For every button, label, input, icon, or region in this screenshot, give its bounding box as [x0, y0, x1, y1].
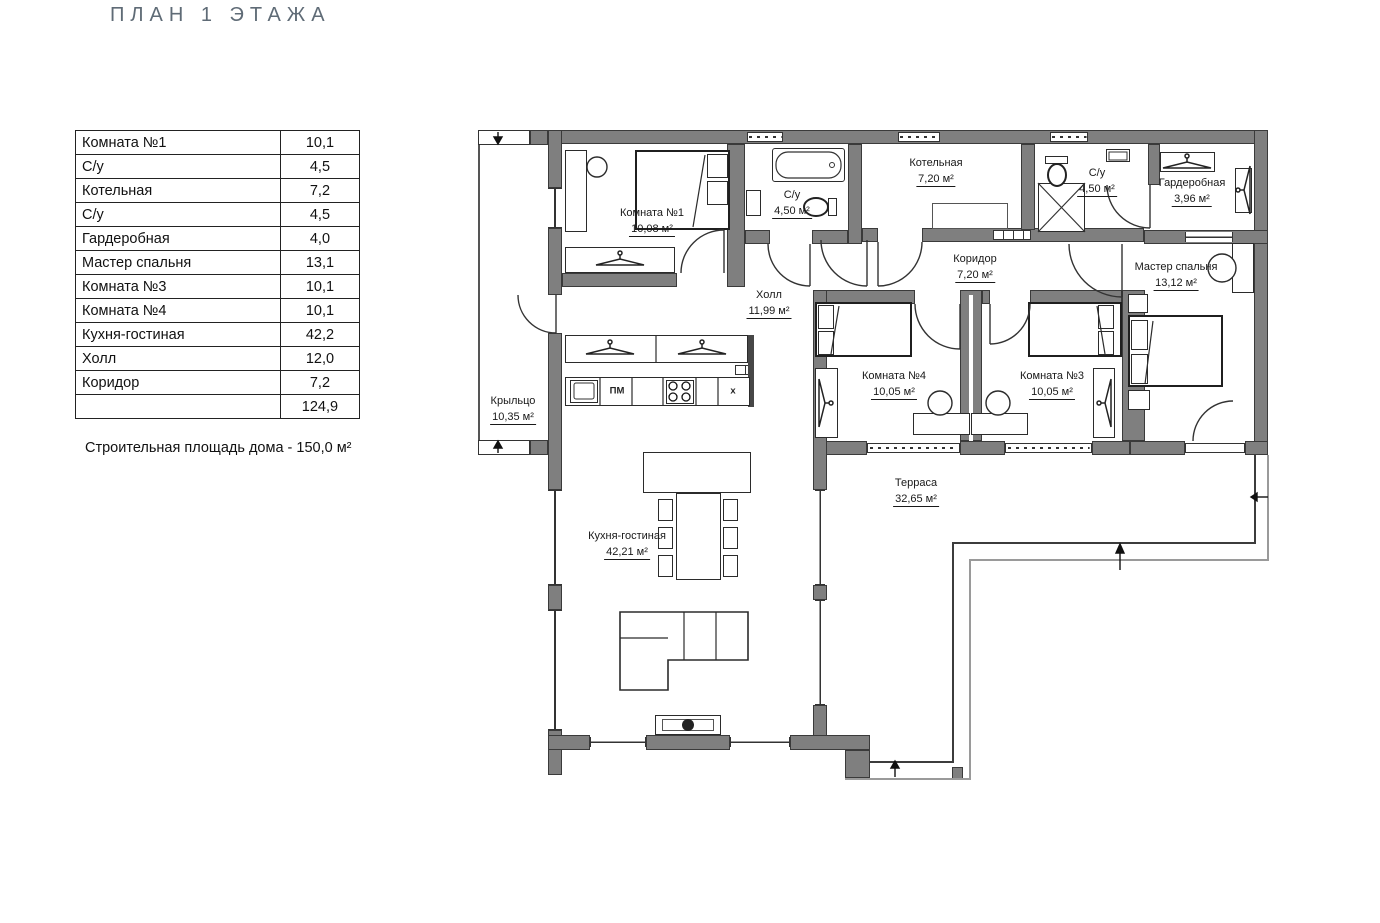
- wardrobe: [815, 368, 838, 438]
- floor-plan-drawing: ПМ х: [470, 125, 1270, 790]
- total-value: 124,9: [280, 395, 359, 419]
- wall: [1245, 441, 1268, 455]
- room-label-bedroom1: Комната №1 10,08 м²: [620, 207, 684, 237]
- window-icon: [898, 132, 940, 142]
- wall: [1130, 441, 1185, 455]
- window-icon: [1185, 232, 1233, 242]
- room-name-cell: Мастер спальня: [76, 251, 281, 275]
- room-label-room4: Комната №4 10,05 м²: [862, 370, 926, 400]
- pillow: [818, 305, 834, 329]
- wall: [562, 273, 677, 287]
- table-row: Мастер спальня13,1: [76, 251, 360, 275]
- room-area-cell: 42,2: [280, 323, 359, 347]
- room-name-cell: Холл: [76, 347, 281, 371]
- desk: [565, 150, 587, 232]
- total-label-cell: [76, 395, 281, 419]
- sink: [1106, 149, 1130, 162]
- table-row: Холл12,0: [76, 347, 360, 371]
- toilet-tank: [1045, 156, 1068, 164]
- room-label-wardrobe-room: Гардеробная 3,96 м²: [1159, 177, 1226, 207]
- window-icon: [548, 610, 562, 730]
- window-icon: [815, 600, 825, 705]
- room-area-cell: 10,1: [280, 299, 359, 323]
- wall: [1092, 441, 1130, 455]
- page-title: ПЛАН 1 ЭТАЖА: [110, 4, 331, 27]
- porch-wall: [478, 130, 480, 455]
- wall: [530, 130, 548, 145]
- wall: [1254, 130, 1268, 455]
- pillow: [1131, 320, 1148, 350]
- window-icon: [747, 132, 783, 142]
- stove: [666, 380, 694, 404]
- window-icon: [548, 188, 562, 228]
- chair: [723, 499, 738, 521]
- pillow: [707, 181, 728, 205]
- fridge-label: х: [730, 386, 735, 397]
- wall: [548, 333, 562, 490]
- table-row: Комната №410,1: [76, 299, 360, 323]
- room-label-room3: Комната №3 10,05 м²: [1020, 370, 1084, 400]
- wardrobe-shelf: [1160, 152, 1215, 172]
- wardrobe: [1093, 368, 1115, 438]
- room-name-cell: Комната №1: [76, 131, 281, 155]
- wall: [548, 228, 562, 295]
- plan-linework: [470, 125, 1270, 790]
- room-area-cell: 4,5: [280, 155, 359, 179]
- room-name-cell: Гардеробная: [76, 227, 281, 251]
- wall: [646, 735, 730, 750]
- kitchen-island: [643, 452, 751, 493]
- room-name-cell: Кухня-гостиная: [76, 323, 281, 347]
- entrance-door-opening: [548, 295, 562, 333]
- table-row: Коридор7,2: [76, 371, 360, 395]
- room-label-boiler: Котельная 7,20 м²: [909, 157, 962, 187]
- room-label-bathroom1: С/у 4,50 м²: [772, 189, 812, 219]
- room-name-cell: Комната №3: [76, 275, 281, 299]
- bathtub: [772, 148, 845, 182]
- window-icon: [730, 737, 790, 747]
- room-area-cell: 7,2: [280, 371, 359, 395]
- chair: [723, 527, 738, 549]
- room-area-cell: 4,5: [280, 203, 359, 227]
- wall: [790, 735, 870, 750]
- room-label-master-bedroom: Мастер спальня 13,12 м²: [1135, 261, 1218, 291]
- build-area-note: Строительная площадь дома - 150,0 м²: [85, 440, 352, 456]
- porch-step: [478, 440, 530, 455]
- area-table-body: Комната №110,1С/у4,5Котельная7,2С/у4,5Га…: [76, 131, 360, 395]
- room-label-terrace: Терраса 32,65 м²: [893, 477, 939, 507]
- wall: [848, 144, 862, 244]
- window-icon: [867, 443, 960, 453]
- table-row-total: 124,9: [76, 395, 360, 419]
- table-row: Котельная7,2: [76, 179, 360, 203]
- kitchen-sink: [570, 380, 598, 403]
- tv: [662, 719, 714, 731]
- room-name-cell: Коридор: [76, 371, 281, 395]
- wall: [982, 290, 990, 304]
- table-row: Комната №110,1: [76, 131, 360, 155]
- table-row: Кухня-гостиная42,2: [76, 323, 360, 347]
- room-label-bathroom2: С/у 4,50 м²: [1077, 167, 1117, 197]
- wardrobe-shelf: [1235, 168, 1252, 213]
- sink: [746, 190, 761, 216]
- hall-wardrobe: [565, 335, 748, 363]
- area-table: Комната №110,1С/у4,5Котельная7,2С/у4,5Га…: [75, 130, 360, 419]
- window-icon: [815, 490, 825, 585]
- wall: [548, 735, 590, 750]
- table-row: С/у4,5: [76, 203, 360, 227]
- table-row: Комната №310,1: [76, 275, 360, 299]
- wall: [745, 230, 770, 244]
- wall: [812, 230, 848, 244]
- window-icon: [590, 737, 646, 747]
- chair: [723, 555, 738, 577]
- room-label-hall: Холл 11,99 м²: [747, 289, 792, 319]
- room-label-corridor: Коридор 7,20 м²: [953, 253, 996, 283]
- wall: [1021, 144, 1035, 230]
- terrace-column: [952, 767, 963, 779]
- pillow: [818, 331, 834, 355]
- room-area-cell: 12,0: [280, 347, 359, 371]
- wall: [960, 441, 1005, 455]
- table-row: Гардеробная4,0: [76, 227, 360, 251]
- floor-plan-page: ПЛАН 1 ЭТАЖА Комната №110,1С/у4,5Котельн…: [0, 0, 1380, 923]
- room-name-cell: С/у: [76, 203, 281, 227]
- vent-block-icon: [993, 230, 1031, 240]
- pillow: [1098, 331, 1114, 355]
- closet: [1232, 243, 1254, 293]
- pillow: [707, 154, 728, 178]
- table-row: С/у4,5: [76, 155, 360, 179]
- room-area-cell: 7,2: [280, 179, 359, 203]
- room-label-kitchen: Кухня-гостиная 42,21 м²: [588, 530, 666, 560]
- vent-block-icon: [735, 365, 749, 375]
- wall: [922, 228, 1144, 242]
- window-icon: [548, 490, 562, 585]
- room-label-porch: Крыльцо 10,35 м²: [490, 395, 536, 425]
- room-name-cell: С/у: [76, 155, 281, 179]
- room-area-cell: 10,1: [280, 275, 359, 299]
- window-icon: [1050, 132, 1088, 142]
- pillow: [1098, 305, 1114, 329]
- room-area-cell: 4,0: [280, 227, 359, 251]
- wall: [530, 440, 548, 455]
- nightstand: [1128, 294, 1148, 313]
- wardrobe: [565, 247, 675, 273]
- wall: [862, 228, 878, 242]
- room-name-cell: Котельная: [76, 179, 281, 203]
- nightstand: [1128, 390, 1150, 410]
- boiler-equipment: [932, 203, 1008, 229]
- desk: [971, 413, 1028, 435]
- room-name-cell: Комната №4: [76, 299, 281, 323]
- wall: [548, 130, 562, 188]
- porch-step: [478, 130, 530, 145]
- toilet-tank: [828, 198, 837, 216]
- room-area-cell: 10,1: [280, 131, 359, 155]
- wall: [548, 585, 562, 610]
- dishwasher-label: ПМ: [610, 386, 625, 397]
- chair: [658, 499, 673, 521]
- room-area-cell: 13,1: [280, 251, 359, 275]
- wall: [845, 750, 870, 778]
- dining-table: [676, 493, 721, 580]
- pillow: [1131, 354, 1148, 384]
- window-icon: [1005, 443, 1092, 453]
- terrace-door-leaf: [1185, 443, 1245, 453]
- desk: [913, 413, 970, 435]
- wall: [813, 585, 827, 600]
